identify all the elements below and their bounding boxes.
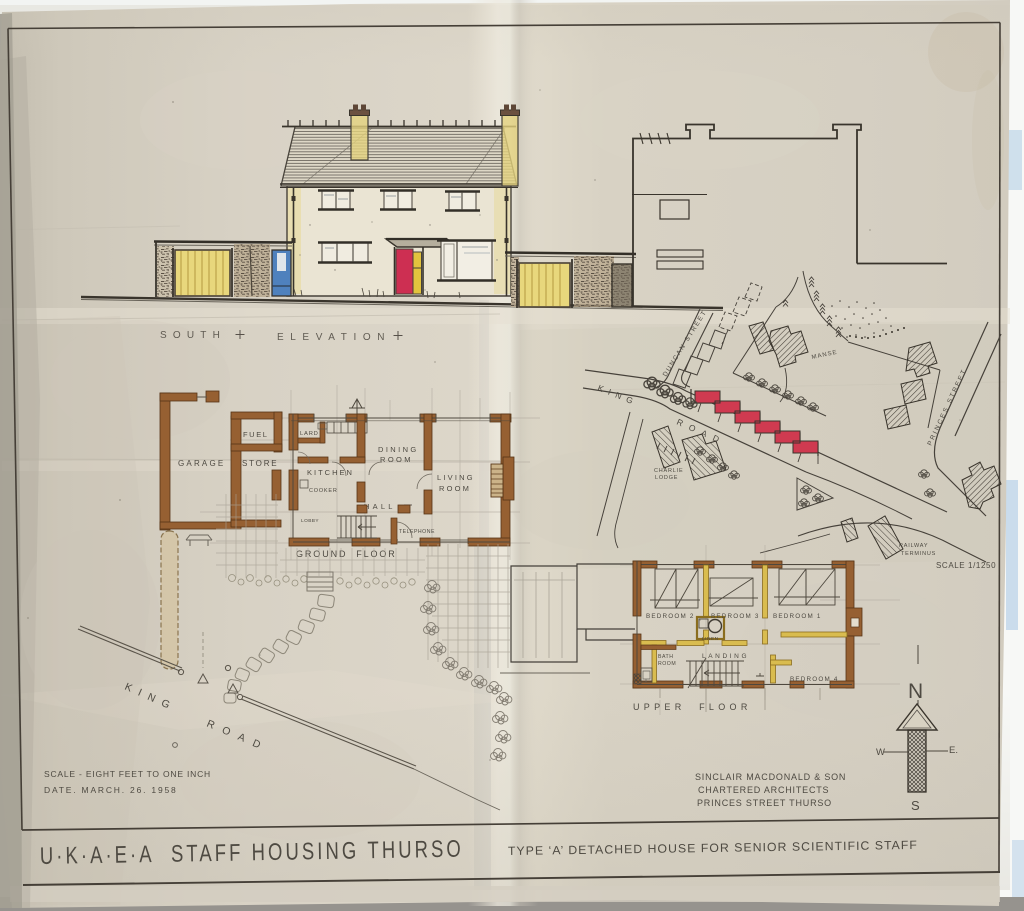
svg-text:SCALE 1/1250: SCALE 1/1250 — [936, 561, 996, 570]
svg-text:FUEL: FUEL — [243, 430, 269, 439]
svg-text:SCALE - EIGHT FEET TO ONE INCH: SCALE - EIGHT FEET TO ONE INCH — [44, 769, 211, 779]
svg-text:LANDING: LANDING — [702, 653, 749, 660]
svg-text:LINEN: LINEN — [702, 636, 719, 642]
svg-text:GROUND FLOOR: GROUND FLOOR — [296, 549, 397, 559]
svg-text:S: S — [911, 798, 920, 813]
svg-text:UPPER FLOOR: UPPER FLOOR — [633, 702, 752, 712]
svg-text:LARD: LARD — [300, 431, 319, 437]
svg-text:HALL: HALL — [364, 502, 396, 511]
svg-text:ROOM: ROOM — [658, 661, 676, 667]
svg-text:DINING: DINING — [378, 445, 419, 454]
svg-text:LOBBY: LOBBY — [301, 518, 319, 524]
svg-text:ROOM: ROOM — [380, 455, 413, 464]
svg-text:LIVING: LIVING — [437, 473, 475, 482]
svg-text:CHARTERED ARCHITECTS: CHARTERED ARCHITECTS — [698, 785, 829, 795]
svg-text:COOKER: COOKER — [309, 488, 338, 494]
svg-text:TERMINUS: TERMINUS — [901, 551, 936, 557]
svg-text:TELEPHONE: TELEPHONE — [399, 529, 435, 535]
svg-text:KITCHEN: KITCHEN — [307, 468, 354, 477]
svg-text:W: W — [876, 747, 885, 758]
svg-text:GARAGE: GARAGE — [178, 459, 225, 468]
svg-text:N: N — [908, 680, 923, 703]
svg-text:PRINCES STREET THURSO: PRINCES STREET THURSO — [697, 798, 832, 808]
svg-text:SINCLAIR MACDONALD & SON: SINCLAIR MACDONALD & SON — [695, 772, 846, 782]
svg-text:CHARLIE: CHARLIE — [654, 468, 683, 474]
svg-text:BEDROOM 1: BEDROOM 1 — [773, 613, 822, 620]
svg-text:ELEVATION: ELEVATION — [277, 332, 391, 343]
svg-text:LODGE: LODGE — [655, 475, 678, 481]
svg-text:ROOM: ROOM — [439, 484, 471, 493]
svg-text:BEDROOM 3: BEDROOM 3 — [711, 613, 760, 620]
svg-text:BEDROOM 2: BEDROOM 2 — [646, 613, 695, 620]
svg-text:SOUTH: SOUTH — [160, 330, 226, 341]
svg-text:RAILWAY: RAILWAY — [899, 543, 928, 549]
svg-text:E.: E. — [949, 745, 958, 756]
svg-text:DATE. MARCH. 26. 1958: DATE. MARCH. 26. 1958 — [44, 785, 178, 795]
svg-text:BEDROOM 4: BEDROOM 4 — [790, 676, 839, 683]
svg-text:BATH: BATH — [658, 654, 673, 660]
svg-text:STORE: STORE — [242, 459, 278, 468]
